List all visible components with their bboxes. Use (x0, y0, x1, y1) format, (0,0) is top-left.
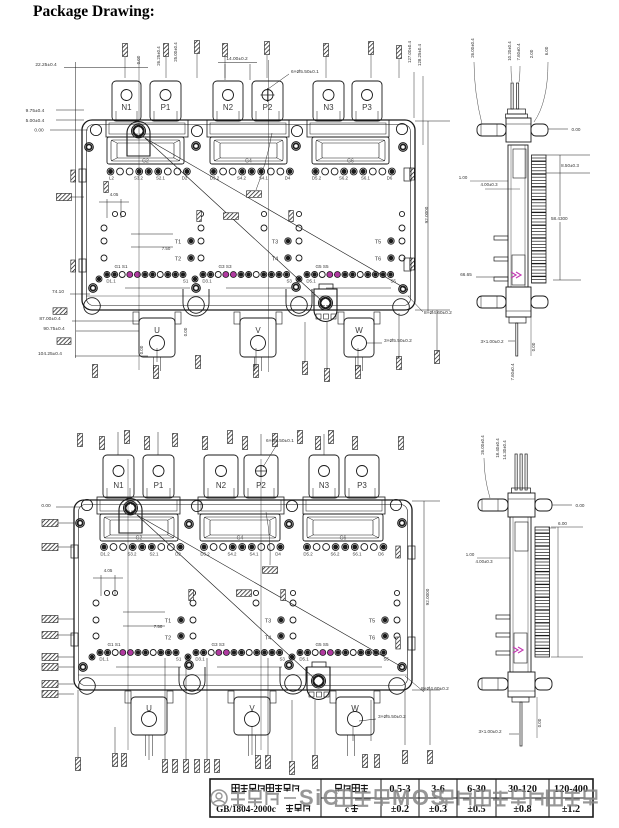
svg-text:S4.2: S4.2 (227, 552, 237, 557)
svg-text:D5.2: D5.2 (303, 552, 313, 557)
svg-text:P3: P3 (362, 103, 372, 112)
svg-text:7.60±0.4: 7.60±0.4 (516, 43, 521, 61)
svg-text:92.0000: 92.0000 (424, 206, 429, 223)
svg-text:T2: T2 (175, 257, 181, 263)
svg-text:G2: G2 (142, 159, 149, 165)
svg-text:D3.1: D3.1 (202, 279, 212, 284)
svg-text:128.25±0.4: 128.25±0.4 (417, 43, 422, 66)
svg-text:N2: N2 (223, 103, 234, 112)
svg-text:0.00: 0.00 (537, 718, 542, 727)
svg-text:0.00: 0.00 (576, 503, 585, 508)
svg-text:3×1.00±0.2: 3×1.00±0.2 (478, 729, 502, 734)
svg-text:D2: D2 (175, 552, 181, 557)
svg-text:S5: S5 (391, 279, 397, 284)
svg-text:D5.1: D5.1 (306, 279, 316, 284)
svg-text:G1 S1: G1 S1 (107, 642, 120, 647)
svg-text:G1 S1: G1 S1 (114, 264, 127, 269)
svg-text:14.00±0.2: 14.00±0.2 (226, 56, 248, 62)
svg-text:S3: S3 (280, 657, 286, 662)
svg-text:S6.2: S6.2 (339, 176, 349, 181)
svg-text:90.75±0.4: 90.75±0.4 (43, 326, 65, 332)
svg-text:S3.2: S3.2 (127, 552, 137, 557)
svg-text:D2: D2 (182, 176, 188, 181)
svg-text:127.00±0.4: 127.00±0.4 (407, 40, 412, 63)
svg-text:G4: G4 (237, 536, 244, 542)
svg-text:L2: L2 (109, 176, 114, 181)
svg-text:D5.2: D5.2 (312, 176, 322, 181)
svg-text:4.00±0.3: 4.00±0.3 (480, 182, 498, 187)
svg-text:D3.2: D3.2 (200, 552, 210, 557)
svg-text:P1: P1 (161, 103, 171, 112)
svg-text:66.65: 66.65 (460, 272, 472, 277)
svg-text:74.10: 74.10 (52, 289, 64, 295)
svg-text:87.00±0.4: 87.00±0.4 (39, 316, 61, 322)
svg-text:92.0000: 92.0000 (425, 588, 430, 605)
svg-text:P3: P3 (357, 481, 367, 490)
svg-text:G6: G6 (340, 536, 347, 542)
svg-text:T5: T5 (375, 240, 381, 246)
svg-text:S2.1: S2.1 (156, 176, 166, 181)
svg-text:T2: T2 (165, 636, 171, 642)
svg-text:GB/1804-2000c: GB/1804-2000c (216, 804, 276, 814)
svg-text:P2: P2 (263, 103, 273, 112)
svg-text:±0.8: ±0.8 (513, 804, 531, 815)
svg-text:D6: D6 (387, 176, 393, 181)
svg-text:14.30±0.4: 14.30±0.4 (502, 440, 507, 460)
svg-text:T3: T3 (272, 240, 278, 246)
svg-text:P1: P1 (154, 481, 164, 490)
svg-text:S6.1: S6.1 (361, 176, 371, 181)
svg-text:3×Ø5.50±0.2: 3×Ø5.50±0.2 (384, 338, 412, 344)
svg-text:T4: T4 (272, 257, 278, 263)
svg-text:T6: T6 (369, 636, 375, 642)
svg-text:0.00: 0.00 (136, 55, 141, 64)
svg-text:D6: D6 (378, 552, 384, 557)
svg-text:S1: S1 (183, 279, 189, 284)
svg-text:5.00±0.4: 5.00±0.4 (26, 118, 45, 124)
svg-text:W: W (351, 704, 359, 713)
svg-text:0.00: 0.00 (183, 327, 188, 336)
svg-text:G5 S5: G5 S5 (315, 642, 328, 647)
svg-text:U: U (146, 704, 152, 713)
svg-text:7.60±0.4: 7.60±0.4 (510, 363, 515, 381)
svg-text:S4.1: S4.1 (249, 552, 259, 557)
svg-text:0.00: 0.00 (572, 127, 581, 132)
svg-text:T3: T3 (265, 619, 271, 625)
svg-text:D1.1: D1.1 (106, 279, 116, 284)
svg-text:8.50±0.3: 8.50±0.3 (561, 163, 579, 168)
svg-text:G4: G4 (245, 159, 252, 165)
svg-text:MOS: MOS (392, 785, 447, 810)
svg-text:8×Ø4.60±0.2: 8×Ø4.60±0.2 (424, 310, 452, 316)
svg-text:18.40±0.4: 18.40±0.4 (495, 438, 500, 458)
svg-text:N1: N1 (121, 103, 132, 112)
svg-text:G2: G2 (136, 536, 143, 542)
svg-text:58.4300: 58.4300 (551, 216, 568, 221)
svg-text:D5.1: D5.1 (299, 657, 309, 662)
svg-text:D3.2: D3.2 (210, 176, 220, 181)
svg-text:6.00: 6.00 (558, 521, 567, 526)
svg-text:T1: T1 (175, 240, 181, 246)
svg-text:104.25±0.4: 104.25±0.4 (38, 351, 62, 357)
svg-text:0.00: 0.00 (139, 345, 144, 354)
svg-text:6.00: 6.00 (544, 46, 549, 55)
svg-text:0.00: 0.00 (531, 342, 536, 351)
svg-text:T6: T6 (375, 257, 381, 263)
svg-text:3×Ø5.50±0.2: 3×Ø5.50±0.2 (378, 714, 406, 720)
svg-text:4.05: 4.05 (104, 568, 113, 573)
svg-text:26.00±0.4: 26.00±0.4 (470, 38, 475, 58)
svg-text:SiC: SiC (299, 785, 340, 810)
svg-text:6×Ø5.50±0.1: 6×Ø5.50±0.1 (266, 438, 294, 444)
svg-text:G5 S5: G5 S5 (315, 264, 328, 269)
svg-text:22.25±0.4: 22.25±0.4 (35, 62, 57, 68)
svg-text:8×Ø4.60±0.2: 8×Ø4.60±0.2 (421, 686, 449, 692)
svg-text:T1: T1 (165, 619, 171, 625)
svg-text:U: U (154, 326, 160, 335)
svg-text:Package Drawing:: Package Drawing: (33, 3, 155, 20)
svg-text:0.00: 0.00 (41, 503, 51, 509)
svg-text:1.00: 1.00 (466, 552, 475, 557)
svg-text:10.20±0.4: 10.20±0.4 (507, 41, 512, 61)
svg-text:7.50: 7.50 (154, 624, 163, 629)
svg-text:S2.1: S2.1 (149, 552, 159, 557)
svg-text:W: W (355, 326, 363, 335)
svg-text:9.75±0.4: 9.75±0.4 (26, 108, 45, 114)
svg-text:D4: D4 (285, 176, 291, 181)
svg-text:S1: S1 (176, 657, 182, 662)
svg-text:26.25±0.4: 26.25±0.4 (156, 46, 161, 66)
svg-text:6×Ø5.50±0.1: 6×Ø5.50±0.1 (291, 69, 319, 75)
svg-text:G3 S3: G3 S3 (211, 642, 224, 647)
svg-text:T4: T4 (265, 636, 271, 642)
svg-text:V: V (255, 326, 261, 335)
svg-text:N2: N2 (216, 481, 227, 490)
svg-text:G6: G6 (347, 159, 354, 165)
svg-text:S5: S5 (384, 657, 390, 662)
svg-text:G3 S3: G3 S3 (218, 264, 231, 269)
svg-text:N1: N1 (113, 481, 124, 490)
svg-text:N3: N3 (319, 481, 330, 490)
svg-text:26.00±0.4: 26.00±0.4 (480, 435, 485, 455)
svg-text:S3.2: S3.2 (134, 176, 144, 181)
svg-text:D4: D4 (275, 552, 281, 557)
svg-text:4.05: 4.05 (110, 192, 119, 197)
svg-text:D1.2: D1.2 (100, 552, 110, 557)
svg-text:S3: S3 (287, 279, 293, 284)
svg-text:D1.1: D1.1 (99, 657, 109, 662)
svg-text:4.00±0.3: 4.00±0.3 (475, 559, 493, 564)
svg-text:S4.2: S4.2 (237, 176, 247, 181)
svg-text:S4.1: S4.1 (259, 176, 269, 181)
svg-text:T5: T5 (369, 619, 375, 625)
svg-text:P2: P2 (256, 481, 266, 490)
svg-text:0.00: 0.00 (34, 128, 44, 134)
svg-text:V: V (249, 704, 255, 713)
svg-text:2.00: 2.00 (529, 49, 534, 58)
svg-text:3×1.00±0.2: 3×1.00±0.2 (480, 339, 504, 344)
svg-text:1.00: 1.00 (459, 175, 468, 180)
svg-text:S6.1: S6.1 (352, 552, 362, 557)
svg-text:S6.2: S6.2 (330, 552, 340, 557)
svg-text:N3: N3 (323, 103, 334, 112)
svg-text:D3.1: D3.1 (195, 657, 205, 662)
svg-text:25.00±0.4: 25.00±0.4 (173, 42, 178, 62)
